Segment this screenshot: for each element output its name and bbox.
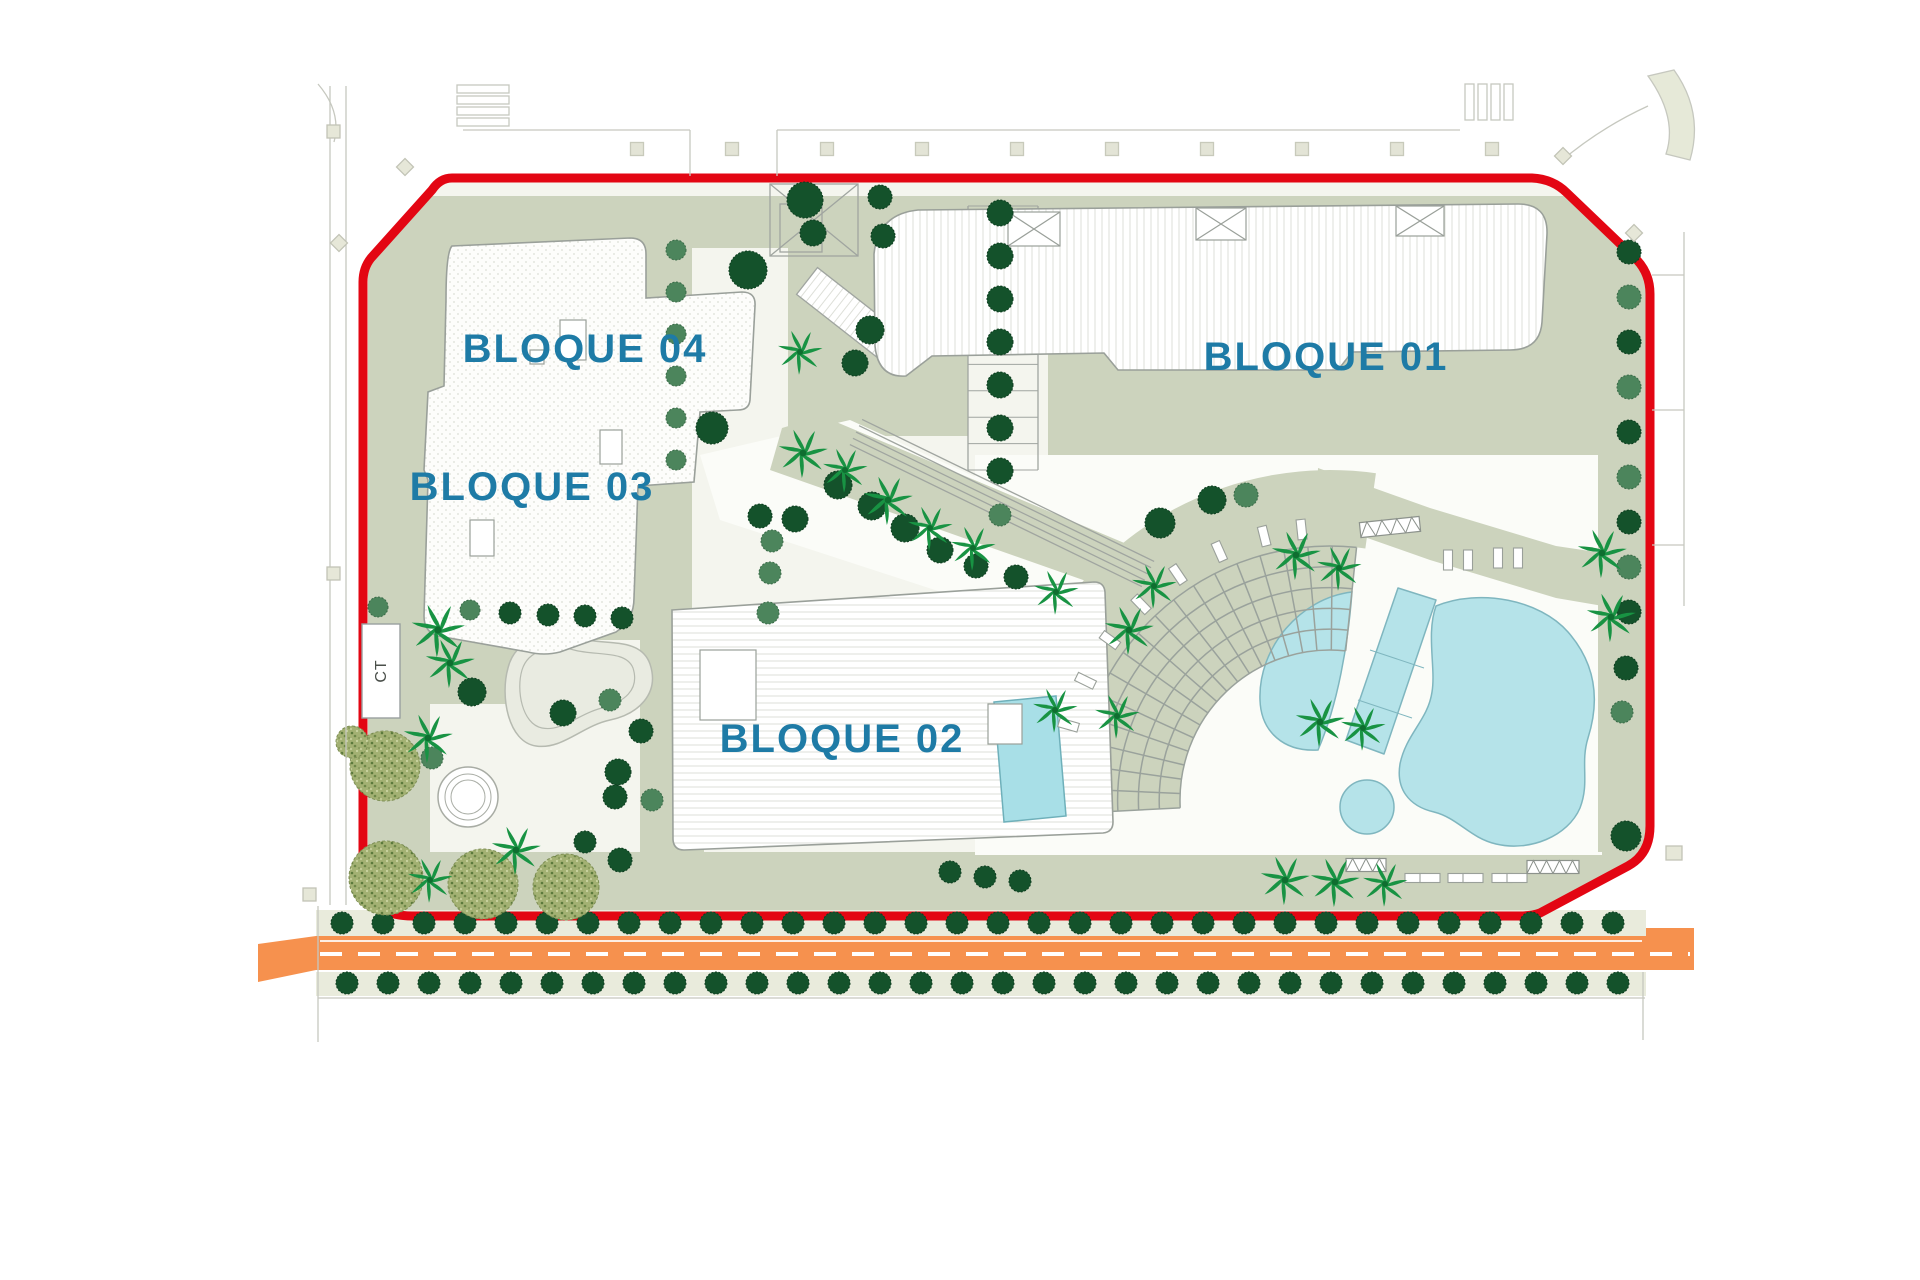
building-core-bloque-02	[700, 650, 756, 720]
site-plan: BLOQUE 04 BLOQUE 03 BLOQUE 01 BLOQUE 02 …	[0, 0, 1920, 1280]
label-bloque-03: BLOQUE 03	[410, 465, 655, 509]
top-right-verge	[1648, 70, 1694, 160]
label-bloque-04: BLOQUE 04	[463, 327, 708, 371]
top-left-building	[457, 85, 509, 126]
top-right-building	[1465, 84, 1513, 120]
label-ct: CT	[373, 659, 390, 682]
label-bloque-02: BLOQUE 02	[720, 717, 965, 761]
right-plot-lines	[1652, 232, 1684, 606]
fountain-circle	[438, 767, 498, 827]
label-bloque-01: BLOQUE 01	[1204, 335, 1449, 379]
left-sidewalk-lines	[330, 86, 346, 905]
site-plan-page: BLOQUE 04 BLOQUE 03 BLOQUE 01 BLOQUE 02 …	[0, 0, 1920, 1280]
top-plot-lines	[463, 130, 1460, 176]
streetlight-squares	[631, 143, 1499, 156]
round-pool	[1340, 780, 1394, 834]
top-right-curb	[1560, 106, 1648, 162]
rooftop-jacuzzi	[988, 704, 1022, 744]
